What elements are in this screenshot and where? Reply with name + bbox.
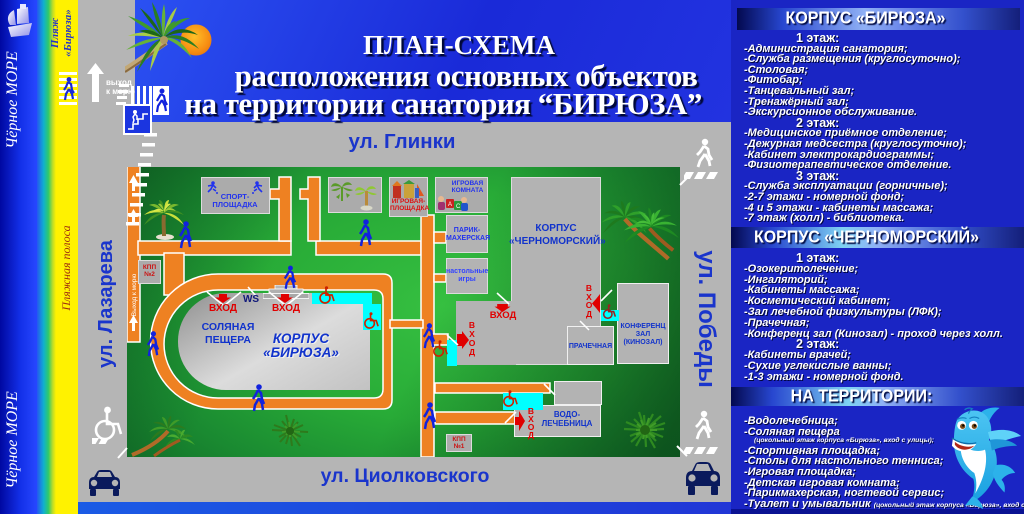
svg-text:Выход к морю: Выход к морю xyxy=(131,274,138,317)
svg-text:А: А xyxy=(448,202,452,208)
svg-text:С: С xyxy=(456,204,461,210)
